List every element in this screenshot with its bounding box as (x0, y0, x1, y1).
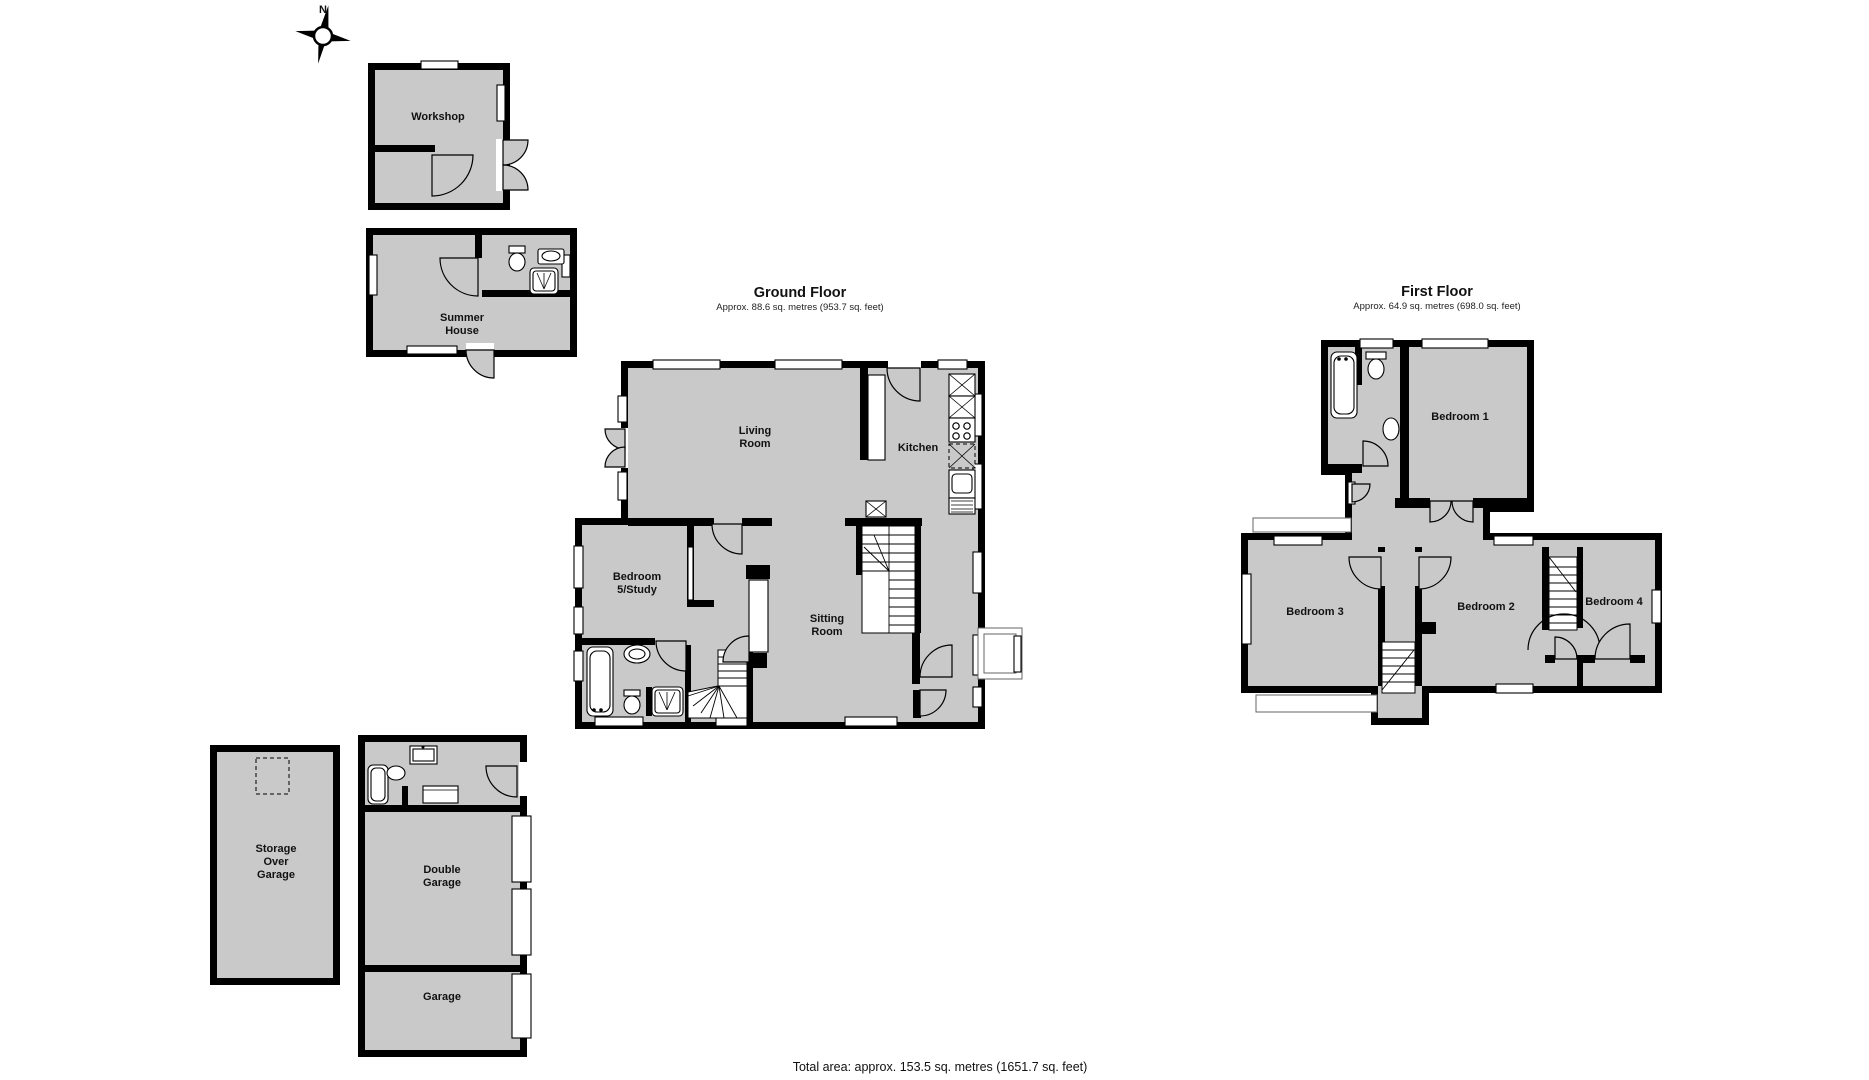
pantry-cupboard-icon (866, 501, 886, 517)
window (1274, 536, 1322, 545)
garage-door (512, 974, 531, 1038)
room-label-garage: Garage (402, 991, 482, 1004)
stairs-icon (862, 526, 915, 633)
window (845, 717, 897, 726)
sink-icon (538, 249, 564, 264)
ground-floor-plan (574, 360, 1022, 729)
first-floor-title: First Floor (1337, 284, 1537, 300)
stairs-icon (1549, 557, 1577, 630)
room-label-storage-over-garage: Storage Over Garage (249, 843, 303, 882)
room-label-double-garage: Double Garage (416, 864, 468, 890)
bay-window (978, 628, 1022, 679)
room-label-kitchen: Kitchen (878, 442, 958, 455)
workshop-plan (368, 61, 528, 210)
room-label-sitting-room: Sitting Room (804, 613, 850, 639)
sink-icon (624, 645, 650, 663)
garage-door (512, 816, 531, 882)
toilet-icon (1366, 352, 1386, 379)
room-label-bedroom1: Bedroom 1 (1417, 411, 1503, 424)
floorplan-drawing (0, 0, 1869, 1080)
window (618, 396, 627, 422)
bath-icon (368, 765, 388, 804)
door-arc (503, 140, 528, 165)
window (938, 360, 967, 369)
garage-building-plan (358, 735, 531, 1057)
total-area-text: Total area: approx. 153.5 sq. metres (16… (740, 1060, 1140, 1074)
summer-house-plan (366, 228, 577, 378)
bath-icon (587, 647, 613, 716)
window (1360, 339, 1393, 348)
first-floor-plan (1241, 339, 1662, 725)
bath-icon (1331, 352, 1357, 418)
flat-roof-outline (1256, 695, 1377, 712)
room-label-living-room: Living Room (732, 425, 778, 451)
ground-floor-area: Approx. 88.6 sq. metres (953.7 sq. feet) (670, 302, 930, 313)
window (595, 717, 643, 726)
window (574, 651, 583, 681)
window (1494, 536, 1533, 545)
chimney-breast (749, 580, 768, 652)
window (973, 687, 982, 707)
room-label-summer-house: Summer House (435, 312, 489, 338)
window (407, 346, 457, 354)
ground-floor-title: Ground Floor (700, 285, 900, 301)
window (1496, 684, 1533, 693)
cabinet-icon (410, 746, 437, 765)
room-label-bedroom3: Bedroom 3 (1272, 606, 1358, 619)
shower-icon (530, 268, 558, 294)
window (421, 61, 458, 69)
loft-hatch (256, 758, 289, 794)
room-label-workshop: Workshop (398, 111, 478, 124)
sink-icon (1383, 418, 1399, 440)
window (574, 607, 583, 634)
door-arc (605, 447, 625, 467)
flat-roof-outline (1253, 518, 1351, 532)
window (369, 255, 377, 295)
door-arc (466, 350, 494, 378)
window (973, 552, 982, 593)
toilet-icon (509, 246, 525, 271)
first-floor-area: Approx. 64.9 sq. metres (698.0 sq. feet) (1307, 301, 1567, 312)
room-label-bedroom2: Bedroom 2 (1443, 601, 1529, 614)
room-label-bedroom4: Bedroom 4 (1572, 596, 1656, 609)
window (1242, 574, 1251, 644)
window (497, 85, 505, 121)
door-arc (605, 429, 625, 449)
window (574, 546, 583, 588)
door-arc (503, 165, 528, 190)
bench-icon (423, 786, 458, 803)
garage-door (512, 889, 531, 955)
window (775, 360, 842, 369)
hob-icon (949, 418, 975, 442)
toilet-icon (624, 690, 640, 714)
stairs-icon (1382, 642, 1415, 693)
window (1422, 339, 1488, 348)
window (653, 360, 720, 369)
floorplan-page: N Workshop Summer House Ground Floor App… (0, 0, 1869, 1080)
sink-icon (387, 766, 405, 780)
room-label-bedroom5-study: Bedroom 5/Study (608, 571, 666, 597)
compass-north-label: N (313, 4, 333, 17)
shower-icon (652, 687, 683, 716)
window (618, 472, 627, 500)
